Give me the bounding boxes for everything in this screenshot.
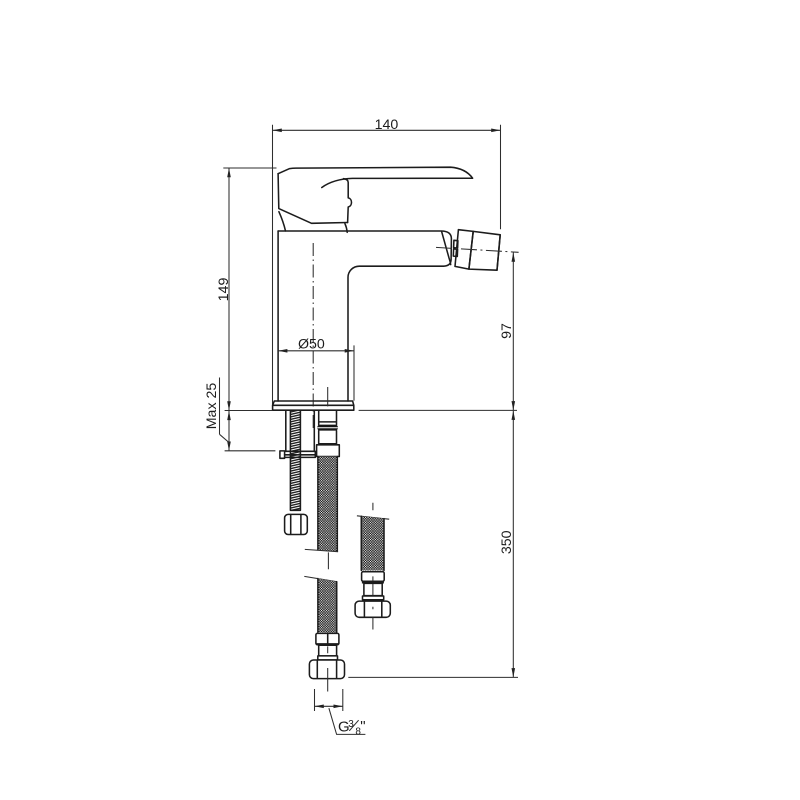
svg-text:97: 97 (499, 323, 515, 339)
svg-text:140: 140 (375, 117, 399, 133)
svg-text:Ø50: Ø50 (298, 336, 325, 352)
svg-text:": " (360, 718, 365, 735)
svg-text:149: 149 (216, 278, 232, 302)
svg-text:Max 25: Max 25 (204, 383, 220, 430)
svg-text:350: 350 (499, 530, 515, 554)
